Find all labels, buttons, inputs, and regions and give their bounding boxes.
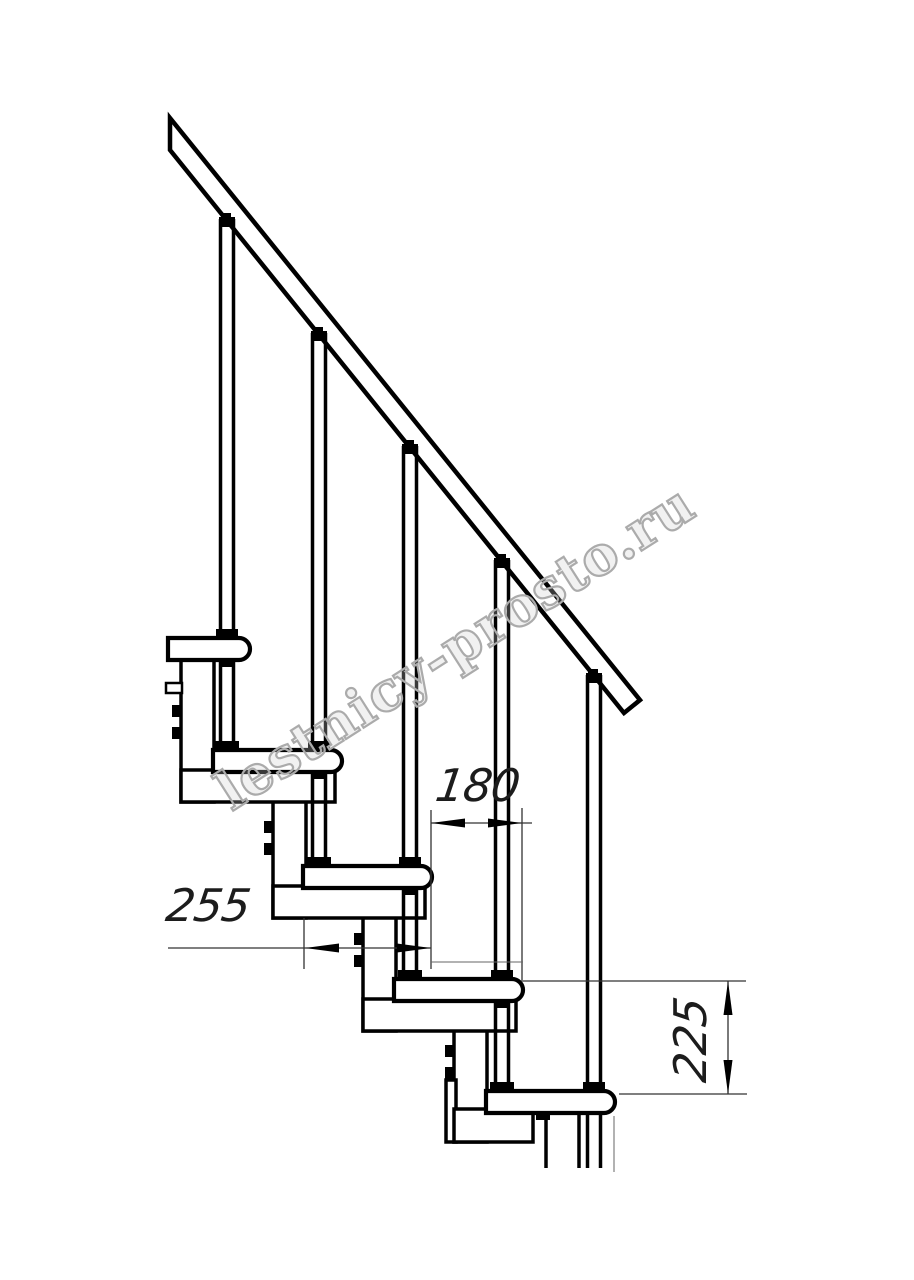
connector-tab: [172, 727, 181, 739]
dimension-label-180: 180: [427, 763, 528, 808]
tread-collar: [583, 1082, 605, 1091]
connector-tab: [354, 933, 363, 945]
arrowhead-down: [724, 1060, 733, 1094]
baluster-foot: [307, 857, 331, 866]
bracket-tab-under-tread5: [536, 1113, 550, 1120]
connector-tab: [445, 1067, 454, 1079]
connector-tab: [445, 1045, 454, 1057]
under-tread-tab: [402, 888, 418, 895]
tread-collar: [216, 629, 238, 638]
support-column-5-cut: [546, 1113, 579, 1168]
tread-3: [303, 866, 432, 888]
tread-1: [168, 638, 250, 660]
dimension-label-255: 255: [155, 883, 261, 928]
dimension-180: [431, 808, 532, 982]
wide-connector-tab: [166, 683, 182, 693]
tread-collar: [491, 970, 513, 979]
connector-tab: [172, 705, 181, 717]
tread-4: [394, 979, 523, 1001]
baluster-foot: [215, 741, 239, 750]
dimension-label-225: 225: [667, 977, 715, 1104]
arrowhead-left: [431, 819, 465, 828]
under-tread-tab: [219, 660, 235, 667]
baluster-1: [221, 219, 234, 750]
technical-drawing-stair-section: 180 255 225 lestnicy-prosto.ru: [0, 0, 914, 1280]
under-tread-tab: [494, 1001, 510, 1008]
stair-drawing-canvas: [0, 0, 914, 1280]
baluster-fittings: [215, 213, 605, 1091]
arrowhead-right: [488, 819, 522, 828]
under-tread-tab: [311, 772, 327, 779]
tread-2: [213, 750, 342, 772]
tread-collar: [308, 741, 330, 750]
connector-tab: [264, 821, 273, 833]
mounting-plate-4: [363, 999, 516, 1031]
tread-collar: [399, 857, 421, 866]
baluster-foot: [398, 970, 422, 979]
arrowhead-up: [724, 981, 733, 1015]
arrowhead-left: [305, 944, 339, 953]
arrowhead-right: [397, 944, 431, 953]
connector-tab: [354, 955, 363, 967]
connector-tab: [264, 843, 273, 855]
tread-5: [486, 1091, 615, 1113]
baluster-foot: [490, 1082, 514, 1091]
